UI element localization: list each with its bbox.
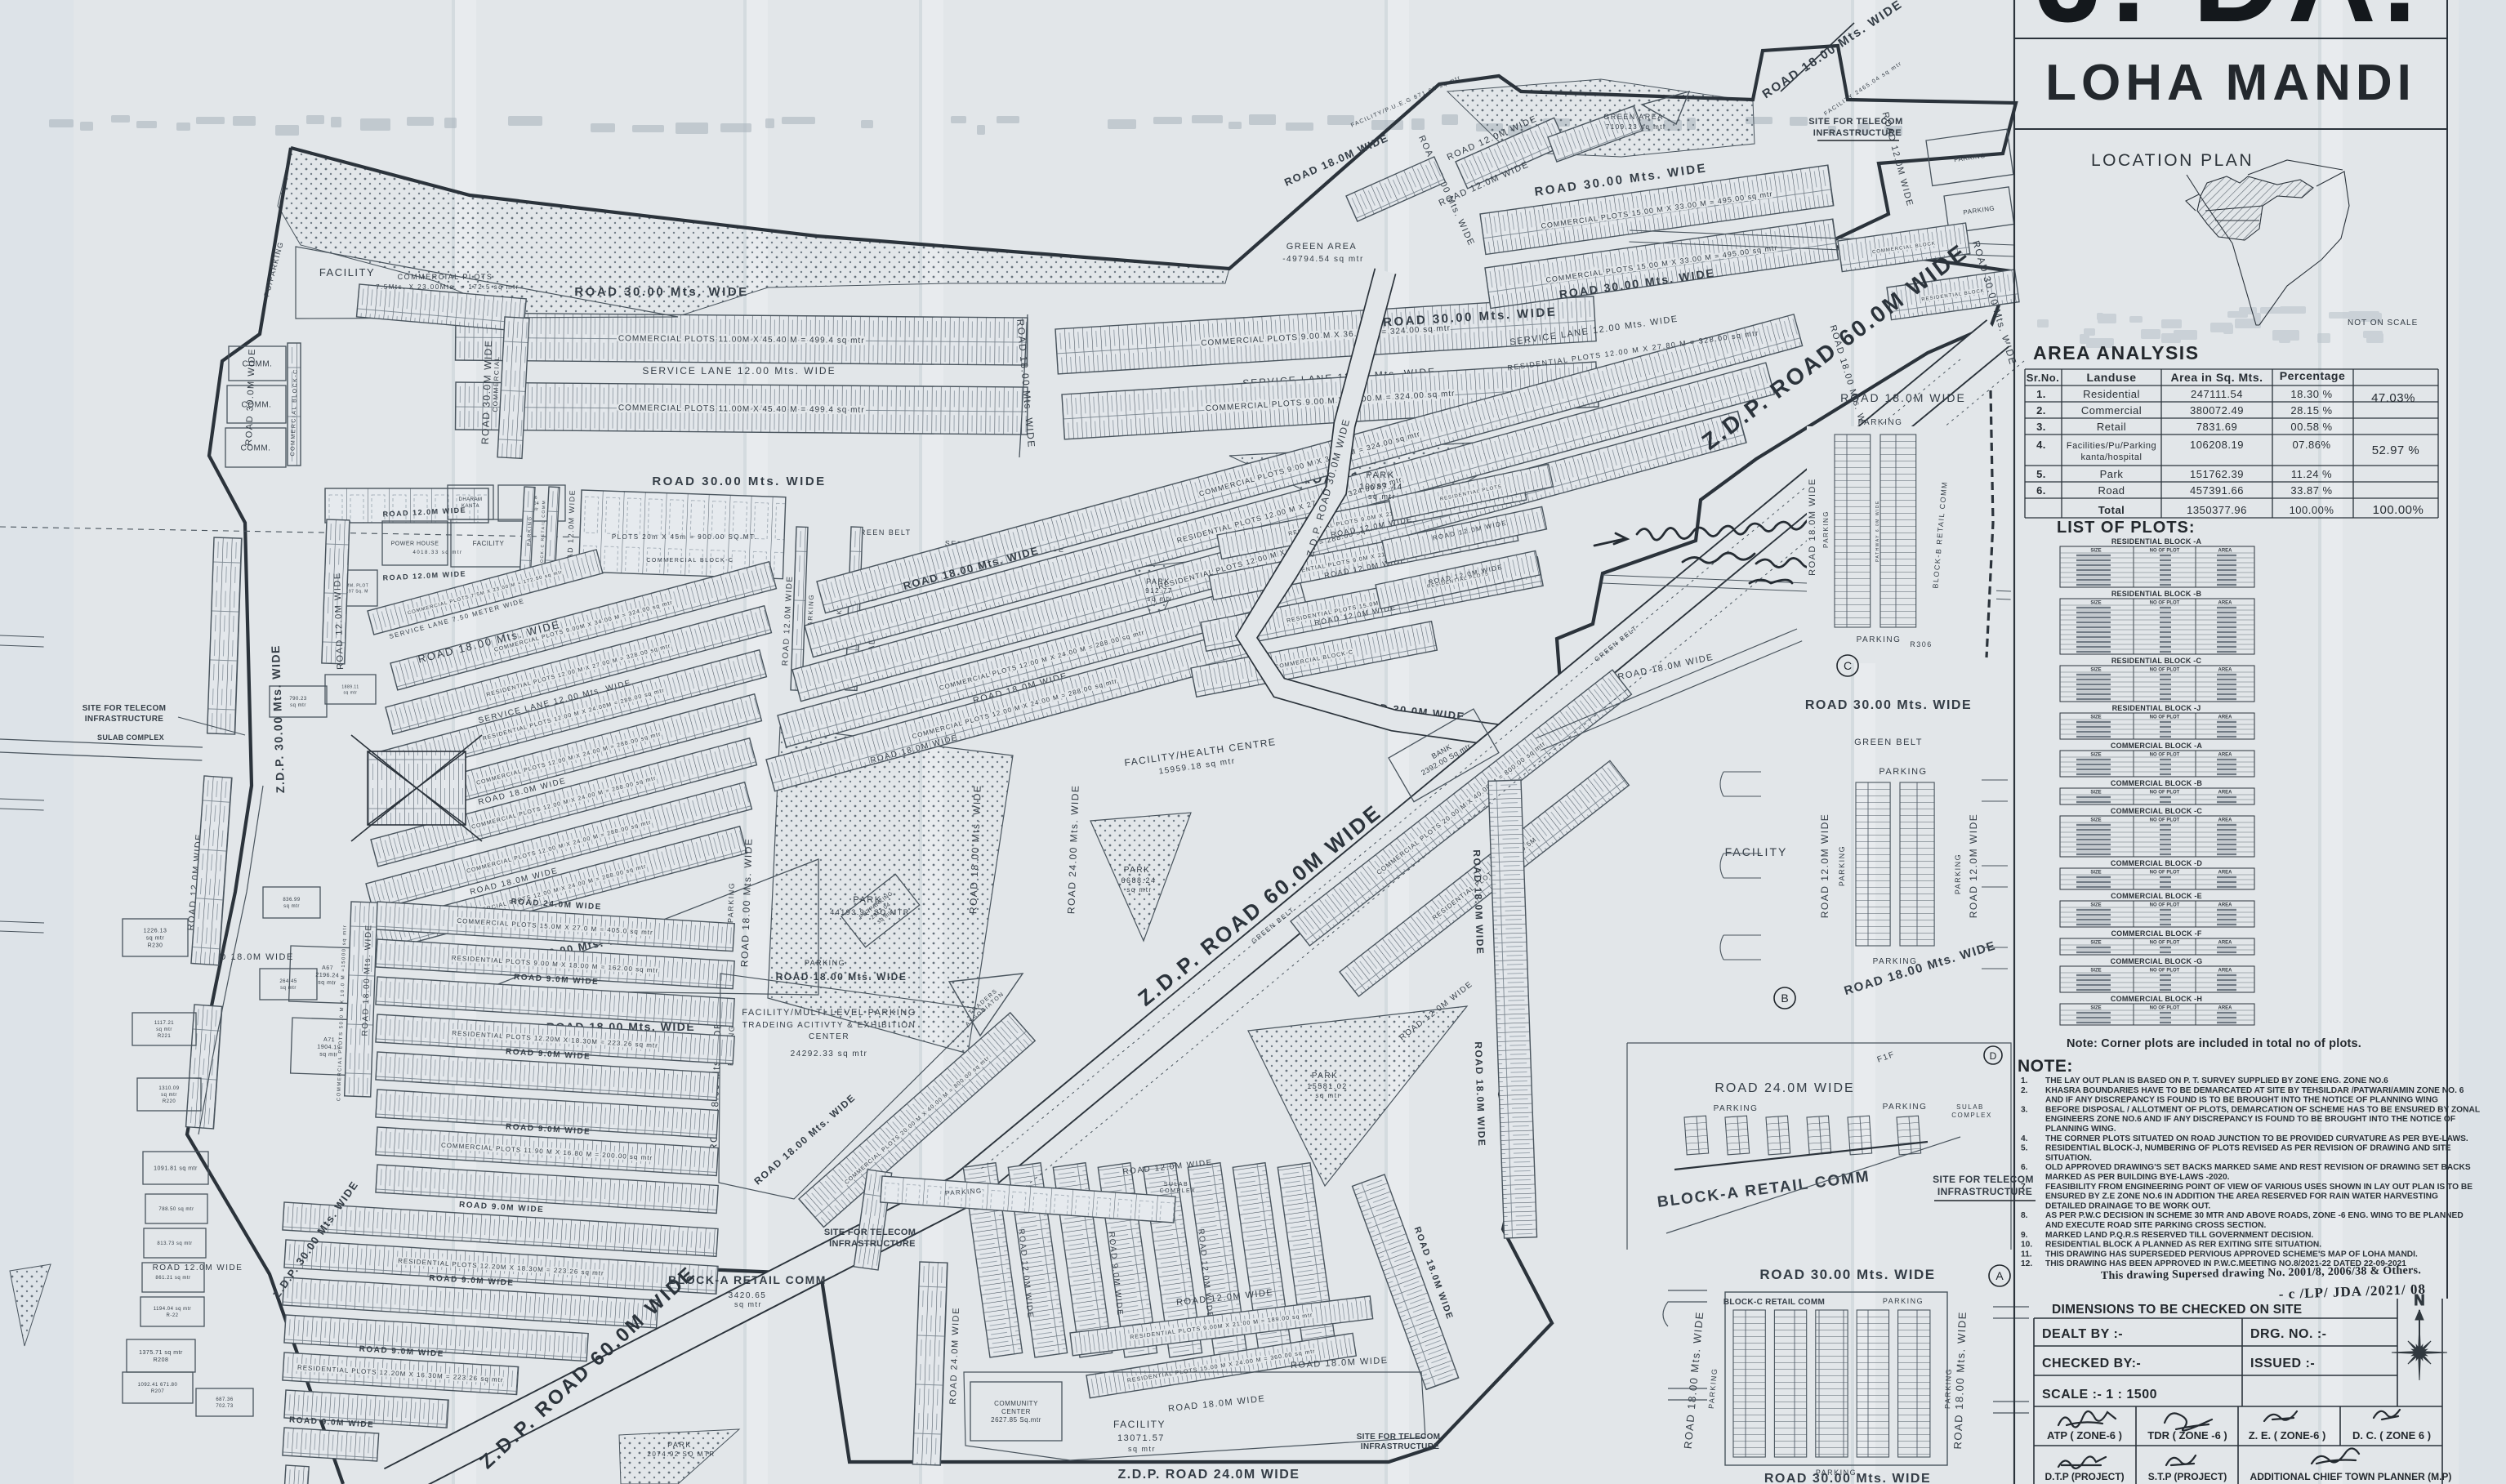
svg-text:R221: R221 [158, 1034, 172, 1039]
svg-text:790.23: 790.23 [289, 697, 307, 702]
svg-text:D.T.P (PROJECT): D.T.P (PROJECT) [2044, 1471, 2124, 1482]
svg-text:ROAD 12.0M WIDE: ROAD 12.0M WIDE [1968, 813, 1979, 919]
svg-text:ISSUED :-: ISSUED :- [2250, 1357, 2315, 1370]
svg-text:SIZE: SIZE [2090, 715, 2101, 720]
svg-text:Facilities/Pu/Parking: Facilities/Pu/Parking [2067, 441, 2156, 451]
svg-text:457391.66: 457391.66 [2190, 484, 2244, 497]
svg-text:TDR ( ZONE -6 ): TDR ( ZONE -6 ) [2147, 1429, 2227, 1442]
svg-text:CHECKED BY:-: CHECKED BY:- [2042, 1357, 2141, 1370]
svg-text:sq mtr: sq mtr [1315, 1092, 1340, 1099]
svg-text:PARK: PARK [667, 1441, 692, 1449]
svg-text:SULAB: SULAB [1164, 1182, 1188, 1188]
svg-text:1194.04 sq mtr: 1194.04 sq mtr [154, 1307, 192, 1312]
svg-text:RESIDENTIAL BLOCK A PLANNED AS: RESIDENTIAL BLOCK A PLANNED AS RER EXITI… [2045, 1241, 2321, 1250]
svg-text:sq mtr: sq mtr [146, 935, 165, 941]
svg-text:DIMENSIONS TO BE CHECKED ON SI: DIMENSIONS TO BE CHECKED ON SITE [2052, 1303, 2302, 1317]
svg-text:DHARAM: DHARAM [458, 497, 482, 502]
svg-text:PARK: PARK [1146, 577, 1171, 586]
svg-text:4.: 4. [2021, 1134, 2028, 1143]
svg-text:FACILITY: FACILITY [1113, 1419, 1166, 1430]
svg-text:AREA: AREA [2218, 1006, 2232, 1011]
svg-text:PARKING: PARKING [1883, 1103, 1928, 1112]
svg-text:sq mtr: sq mtr [156, 1027, 172, 1032]
svg-text:ROAD 30.00 Mts. WIDE: ROAD 30.00 Mts. WIDE [1759, 1267, 1935, 1282]
svg-text:2196.24: 2196.24 [315, 973, 339, 979]
svg-text:ROAD 18.0M WIDE: ROAD 18.0M WIDE [1808, 478, 1817, 576]
svg-text:sq mtr: sq mtr [734, 1300, 762, 1308]
svg-text:PLANNING WING.: PLANNING WING. [2045, 1125, 2116, 1134]
svg-text:PARKING: PARKING [726, 882, 736, 924]
svg-text:ROAD 12.0M WIDE: ROAD 12.0M WIDE [1819, 813, 1830, 919]
svg-text:100.00%: 100.00% [2290, 504, 2334, 516]
svg-text:7831.69: 7831.69 [2196, 421, 2238, 433]
svg-text:687.36: 687.36 [216, 1397, 234, 1402]
svg-text:1310.09: 1310.09 [158, 1086, 179, 1091]
svg-text:PARKING: PARKING [1883, 1297, 1924, 1305]
svg-text:SIZE: SIZE [2090, 668, 2101, 673]
svg-text:ROAD 30.00 Mts. WIDE: ROAD 30.00 Mts. WIDE [652, 475, 826, 488]
svg-text:AND EXECUTE ROAD SITE PARKING: AND EXECUTE ROAD SITE PARKING CROSS SECT… [2045, 1221, 2267, 1230]
svg-text:SULAB COMPLEX: SULAB COMPLEX [97, 733, 164, 742]
svg-text:S.T.P (PROJECT): S.T.P (PROJECT) [2148, 1471, 2227, 1482]
svg-text:NO OF PLOT: NO OF PLOT [2150, 818, 2180, 823]
svg-text:INFRASTRUCTURE: INFRASTRUCTURE [1361, 1442, 1439, 1451]
svg-text:sq mtr: sq mtr [344, 690, 358, 695]
svg-text:6.: 6. [2021, 1163, 2028, 1172]
svg-text:151762.39: 151762.39 [2190, 468, 2244, 480]
svg-text:PARKING: PARKING [1714, 1104, 1759, 1113]
svg-text:1889.11: 1889.11 [341, 684, 359, 689]
svg-text:NO OF PLOT: NO OF PLOT [2150, 969, 2180, 974]
svg-text:AREA: AREA [2218, 903, 2232, 908]
svg-text:sq mtr: sq mtr [1128, 1445, 1156, 1453]
svg-text:A67: A67 [322, 965, 333, 971]
svg-text:INFRASTRUCTURE: INFRASTRUCTURE [1937, 1186, 2032, 1197]
svg-text:380072.49: 380072.49 [2190, 404, 2244, 417]
svg-text:AREA: AREA [2218, 668, 2232, 673]
svg-text:sq mtr: sq mtr [1368, 492, 1396, 501]
svg-text:POWER HOUSE: POWER HOUSE [391, 541, 439, 546]
svg-text:SITUATION.: SITUATION. [2045, 1153, 2092, 1162]
svg-text:AND IF ANY DISCREPANCY IS FOUN: AND IF ANY DISCREPANCY IS FOUND IS TO BE… [2045, 1096, 2438, 1105]
svg-text:Retail: Retail [2097, 421, 2126, 433]
svg-text:SIZE: SIZE [2090, 753, 2101, 758]
svg-text:KHASRA BOUNDARIES HAVE TO BE: KHASRA BOUNDARIES HAVE TO BE DEMARCATED … [2045, 1086, 2464, 1095]
svg-text:RESIDENTIAL BLOCK-J, NUMBERING: RESIDENTIAL BLOCK-J, NUMBERING OF PLOTS … [2045, 1144, 2451, 1153]
svg-text:PARK: PARK [1366, 470, 1394, 480]
svg-text:NOTE:: NOTE: [2018, 1057, 2073, 1076]
svg-text:AREA: AREA [2218, 753, 2232, 758]
svg-text:FACILITY: FACILITY [473, 540, 505, 547]
svg-text:RESIDENTIAL BLOCK -A: RESIDENTIAL BLOCK -A [2111, 537, 2202, 546]
svg-text:COMMERCIAL BLOCK -D: COMMERCIAL BLOCK -D [2111, 859, 2202, 867]
svg-text:10087.44: 10087.44 [1359, 483, 1403, 492]
svg-text:ROAD 30.00 Mts. WIDE: ROAD 30.00 Mts. WIDE [1805, 698, 1972, 712]
svg-text:COMMERCIAL BLOCK -C: COMMERCIAL BLOCK -C [2111, 807, 2202, 815]
svg-text:702.73: 702.73 [216, 1404, 234, 1409]
svg-text:Road: Road [2098, 484, 2125, 497]
svg-text:FACILITY: FACILITY [1725, 845, 1788, 858]
svg-text:BEFORE DISPOSAL / ALLOTMENT OF: BEFORE DISPOSAL / ALLOTMENT OF PLOTS, DE… [2045, 1105, 2480, 1114]
svg-text:Landuse: Landuse [2086, 371, 2136, 384]
svg-text:AREA: AREA [2218, 818, 2232, 823]
svg-text:GREEN AREA: GREEN AREA [1286, 242, 1358, 252]
svg-text:ADDITIONAL CHIEF TOWN PLANNER: ADDITIONAL CHIEF TOWN PLANNER (M.P) [2250, 1471, 2452, 1482]
svg-text:PARKING: PARKING [1954, 853, 1962, 894]
svg-text:4.: 4. [2036, 439, 2046, 451]
svg-text:SIZE: SIZE [2090, 1006, 2101, 1011]
svg-text:7109.23 sq mtr: 7109.23 sq mtr [1606, 123, 1666, 131]
svg-text:sq mtr: sq mtr [283, 904, 300, 909]
svg-text:AREA ANALYSIS: AREA ANALYSIS [2033, 342, 2200, 363]
svg-text:AREA: AREA [2218, 871, 2232, 876]
svg-text:R230: R230 [148, 943, 163, 948]
svg-text:2.: 2. [2036, 404, 2046, 417]
svg-text:AREA: AREA [2218, 791, 2232, 795]
svg-text:DRG. NO. :-: DRG. NO. :- [2250, 1327, 2327, 1341]
svg-text:SIZE: SIZE [2090, 903, 2101, 908]
svg-text:OLD APPROVED DRAWING'S SET BAC: OLD APPROVED DRAWING'S SET BACKS MARKED … [2045, 1163, 2471, 1172]
svg-text:A71: A71 [323, 1037, 335, 1043]
svg-text:A: A [1995, 1269, 2004, 1282]
svg-text:1350377.96: 1350377.96 [2187, 504, 2247, 516]
svg-text:ATP ( ZONE-6 ): ATP ( ZONE-6 ) [2047, 1429, 2122, 1442]
svg-text:MARKED LAND P.Q.R.S RESERVED T: MARKED LAND P.Q.R.S RESERVED TILL GOVERN… [2045, 1231, 2313, 1240]
svg-text:kanta/hospital: kanta/hospital [2081, 452, 2143, 462]
svg-text:11.24 %: 11.24 % [2291, 468, 2332, 480]
svg-text:sq mtr: sq mtr [1126, 886, 1152, 894]
svg-text:ROAD 24.0M WIDE: ROAD 24.0M WIDE [1715, 1081, 1854, 1095]
svg-text:COMMERCIAL BLOCK -A: COMMERCIAL BLOCK -A [2111, 742, 2202, 750]
svg-text:47.03%: 47.03% [2371, 391, 2415, 405]
svg-text:THIS DRAWING HAS SUPERSEDED PE: THIS DRAWING HAS SUPERSEDED PERVIOUS APP… [2045, 1250, 2418, 1259]
svg-text:FACILITY: FACILITY [319, 266, 375, 279]
svg-text:N: N [2415, 1292, 2425, 1308]
svg-text:PARKING: PARKING [1943, 1368, 1953, 1410]
svg-text:Percentage: Percentage [2280, 369, 2345, 382]
svg-text:LOHA MANDI: LOHA MANDI [2045, 55, 2416, 111]
svg-text:PARKING: PARKING [1838, 845, 1846, 886]
svg-text:C: C [1844, 659, 1852, 672]
svg-text:AS PER P.W.C DECISION IN SCHE: AS PER P.W.C DECISION IN SCHEME 30 MTR A… [2045, 1211, 2464, 1220]
svg-text:COMMERCIAL BLOCK -B: COMMERCIAL BLOCK -B [2111, 779, 2202, 787]
svg-text:00.58 %: 00.58 % [2290, 421, 2332, 433]
svg-text:ENGINEERS ZONE NO.6 AND IF AN: ENGINEERS ZONE NO.6 AND IF ANY DISCREPAN… [2045, 1115, 2455, 1124]
svg-text:D. C. ( ZONE 6 ): D. C. ( ZONE 6 ) [2352, 1429, 2431, 1442]
svg-text:15581.02: 15581.02 [1307, 1082, 1348, 1090]
svg-text:PARKING: PARKING [1822, 510, 1830, 548]
svg-text:5.: 5. [2021, 1144, 2028, 1153]
svg-text:COMMERCIAL BLOCK-C: COMMERCIAL BLOCK-C [646, 558, 734, 564]
svg-text:AREA: AREA [2218, 549, 2232, 554]
svg-text:COMPLEX: COMPLEX [1160, 1188, 1197, 1194]
svg-text:INFRASTRUCTURE: INFRASTRUCTURE [85, 715, 163, 724]
svg-text:sq mtr: sq mtr [1147, 595, 1172, 603]
svg-text:sq mtr: sq mtr [290, 703, 306, 708]
svg-text:44193.92 SQ MTR: 44193.92 SQ MTR [830, 908, 910, 916]
svg-text:COMMERCIAL BLOCK -H: COMMERCIAL BLOCK -H [2111, 995, 2202, 1003]
svg-text:THE LAY OUT PLAN IS BASED ON: THE LAY OUT PLAN IS BASED ON P. T. SURVE… [2045, 1076, 2388, 1085]
svg-text:SIZE: SIZE [2090, 969, 2101, 974]
svg-text:COMMERCIAL BLOCK -F: COMMERCIAL BLOCK -F [2111, 929, 2201, 938]
svg-text:R220: R220 [163, 1099, 176, 1104]
svg-text:10.: 10. [2021, 1241, 2032, 1250]
svg-text:COMMERCIAL PLOTS: COMMERCIAL PLOTS [398, 273, 493, 281]
svg-text:1904.19: 1904.19 [317, 1045, 341, 1051]
svg-text:NOT ON SCALE: NOT ON SCALE [2348, 319, 2418, 328]
svg-text:LIST OF PLOTS:: LIST OF PLOTS: [2057, 519, 2196, 537]
svg-text:Note: Corner plots are include: Note: Corner plots are included in total… [2067, 1037, 2361, 1050]
svg-text:PARK: PARK [1312, 1072, 1339, 1081]
svg-text:5.: 5. [2036, 468, 2046, 480]
svg-text:CENTER: CENTER [809, 1032, 849, 1041]
svg-text:J. DA.: J. DA. [2036, 0, 2423, 47]
svg-text:D: D [1990, 1050, 1997, 1062]
svg-text:NO OF PLOT: NO OF PLOT [2150, 715, 2180, 720]
svg-text:TRADEING ACITIVTY & EXHIBITION: TRADEING ACITIVTY & EXHIBITION [742, 1021, 916, 1030]
svg-text:ROAD 30.00 Mts. WIDE: ROAD 30.00 Mts. WIDE [574, 285, 748, 299]
svg-text:THE CORNER PLOTS SITUATED ON R: THE CORNER PLOTS SITUATED ON ROAD JUNCTI… [2045, 1134, 2468, 1143]
svg-text:ROAD 12.0M WIDE: ROAD 12.0M WIDE [153, 1263, 243, 1272]
svg-text:ROAD 18.0M WIDE: ROAD 18.0M WIDE [1840, 391, 1966, 404]
svg-text:NO OF PLOT: NO OF PLOT [2150, 753, 2180, 758]
svg-text:RESIDENTIAL BLOCK -J: RESIDENTIAL BLOCK -J [2112, 704, 2201, 712]
svg-text:SIZE: SIZE [2090, 941, 2101, 946]
svg-text:RESIDENTIAL BLOCK -C: RESIDENTIAL BLOCK -C [2111, 657, 2202, 665]
svg-text:SITE FOR TELECOM: SITE FOR TELECOM [824, 1228, 916, 1237]
svg-text:NO OF PLOT: NO OF PLOT [2150, 791, 2180, 795]
svg-text:PARKING: PARKING [1858, 418, 1903, 427]
svg-text:13071.57: 13071.57 [1117, 1433, 1165, 1443]
svg-text:DEALT BY :-: DEALT BY :- [2042, 1327, 2123, 1341]
svg-text:sq mtr: sq mtr [318, 980, 337, 987]
svg-text:PATHWAY 6.0M WIDE: PATHWAY 6.0M WIDE [1875, 500, 1880, 562]
svg-text:2.: 2. [2021, 1086, 2028, 1095]
svg-text:NO OF PLOT: NO OF PLOT [2150, 871, 2180, 876]
svg-text:SIZE: SIZE [2090, 818, 2101, 823]
svg-text:3420.65: 3420.65 [729, 1291, 767, 1300]
svg-text:28.15 %: 28.15 % [2290, 404, 2332, 417]
svg-text:3.: 3. [2021, 1105, 2028, 1114]
svg-text:sq mtr: sq mtr [161, 1093, 177, 1098]
svg-text:11.: 11. [2021, 1250, 2032, 1259]
svg-text:PARKING: PARKING [1879, 767, 1927, 777]
svg-text:PARK: PARK [1124, 866, 1151, 875]
svg-text:AREA: AREA [2218, 969, 2232, 974]
svg-text:52.97 %: 52.97 % [2372, 443, 2420, 457]
svg-text:SERVICE LANE 12.00 Mts. WIDE: SERVICE LANE 12.00 Mts. WIDE [642, 365, 836, 377]
svg-text:GREEN BELT: GREEN BELT [1854, 738, 1923, 747]
svg-text:6688.24: 6688.24 [1121, 876, 1156, 885]
svg-text:R207: R207 [151, 1389, 165, 1394]
svg-text:Z.D.P. ROAD 24.0M WIDE: Z.D.P. ROAD 24.0M WIDE [1118, 1468, 1300, 1482]
svg-text:CENTER: CENTER [1001, 1408, 1031, 1415]
svg-text:SIZE: SIZE [2090, 871, 2101, 876]
svg-text:788.50 sq mtr: 788.50 sq mtr [158, 1207, 194, 1212]
svg-text:INFRASTRUCTURE: INFRASTRUCTURE [829, 1239, 916, 1249]
svg-text:PARK: PARK [853, 895, 881, 905]
svg-text:836.99: 836.99 [283, 898, 301, 902]
svg-text:8.: 8. [2021, 1211, 2028, 1220]
svg-text:AREA: AREA [2218, 941, 2232, 946]
svg-text:ROAD 30.00 Mts. WIDE: ROAD 30.00 Mts. WIDE [1764, 1472, 1931, 1484]
svg-text:264.45: 264.45 [279, 979, 297, 984]
svg-text:1375.71 sq mtr: 1375.71 sq mtr [139, 1350, 183, 1356]
svg-text:RESIDENTIAL BLOCK -B: RESIDENTIAL BLOCK -B [2111, 590, 2202, 598]
svg-text:Area in Sq. Mts.: Area in Sq. Mts. [2170, 371, 2263, 384]
svg-text:2074.92 SQ MTR: 2074.92 SQ MTR [647, 1451, 715, 1458]
svg-text:24292.33 sq mtr: 24292.33 sq mtr [791, 1049, 868, 1058]
svg-text:7.: 7. [2021, 1183, 2028, 1192]
svg-text:813.73 sq mtr: 813.73 sq mtr [157, 1241, 192, 1246]
svg-text:2627.85 Sq.mtr: 2627.85 Sq.mtr [991, 1416, 1041, 1424]
svg-text:1.: 1. [2036, 388, 2046, 400]
svg-text:MARKED AS PER BUILDING BYE-LAW: MARKED AS PER BUILDING BYE-LAWS -2020. [2045, 1173, 2230, 1182]
svg-text:SITE FOR TELECOM: SITE FOR TELECOM [1933, 1174, 2034, 1185]
svg-text:SULAB: SULAB [1956, 1103, 1984, 1111]
svg-text:1092.41 671.80: 1092.41 671.80 [138, 1383, 178, 1388]
svg-text:NO OF PLOT: NO OF PLOT [2150, 1006, 2180, 1011]
svg-text:Park: Park [2100, 468, 2124, 480]
svg-text:33.87 %: 33.87 % [2290, 484, 2332, 497]
svg-text:SIZE: SIZE [2090, 549, 2101, 554]
svg-text:AREA: AREA [2218, 601, 2232, 606]
svg-text:BLOCK-C RETAIL COMM: BLOCK-C RETAIL COMM [1723, 1298, 1825, 1307]
svg-text:Residential: Residential [2083, 388, 2140, 400]
svg-text:Total: Total [2098, 504, 2125, 516]
svg-text:BLOCK-A RETAIL COMM: BLOCK-A RETAIL COMM [668, 1273, 827, 1286]
svg-text:-49794.54 sq mtr: -49794.54 sq mtr [1282, 255, 1364, 264]
svg-text:R306: R306 [1910, 640, 1933, 648]
svg-text:1117.21: 1117.21 [154, 1021, 174, 1026]
svg-text:912.77: 912.77 [1145, 587, 1172, 595]
svg-text:ROAD 18.00 Mts. WIDE: ROAD 18.00 Mts. WIDE [776, 971, 907, 983]
svg-text:PARKING: PARKING [805, 959, 845, 967]
svg-text:NO OF PLOT: NO OF PLOT [2150, 601, 2180, 606]
svg-text:AREA: AREA [2218, 715, 2232, 720]
svg-text:NO OF PLOT: NO OF PLOT [2150, 941, 2180, 946]
svg-text:100.00%: 100.00% [2373, 503, 2424, 517]
svg-text:1.: 1. [2021, 1076, 2028, 1085]
svg-text:Commercial: Commercial [2081, 404, 2142, 417]
svg-text:7.5Mts. X 23.00Mts. = 172.5 sq: 7.5Mts. X 23.00Mts. = 172.5 sq mtr [376, 283, 519, 291]
svg-text:R-22: R-22 [166, 1313, 178, 1318]
svg-text:SITE FOR TELECOM: SITE FOR TELECOM [82, 704, 167, 713]
svg-text:COMMERCIAL BLOCK -E: COMMERCIAL BLOCK -E [2111, 892, 2202, 900]
svg-text:sq mtr: sq mtr [280, 986, 297, 991]
svg-text:18.30 %: 18.30 % [2290, 388, 2332, 400]
svg-text:COMPLEX: COMPLEX [1951, 1112, 1992, 1119]
svg-text:SCALE :- 1 : 1500: SCALE :- 1 : 1500 [2042, 1388, 2157, 1402]
svg-text:DETAILED DRAINAGE TO BE WORK: DETAILED DRAINAGE TO BE WORK OUT. [2045, 1201, 2210, 1210]
svg-text:861.21 sq mtr: 861.21 sq mtr [155, 1276, 190, 1281]
svg-text:SITE FOR TELECOM: SITE FOR TELECOM [1357, 1433, 1441, 1442]
svg-text:NO OF PLOT: NO OF PLOT [2150, 668, 2180, 673]
svg-text:4018.33 sq mtr: 4018.33 sq mtr [412, 550, 462, 555]
svg-text:Z. E. ( ZONE-6 ): Z. E. ( ZONE-6 ) [2249, 1429, 2326, 1442]
svg-text:6.: 6. [2036, 484, 2046, 497]
svg-text:SIZE: SIZE [2090, 601, 2101, 606]
svg-text:Sr.No.: Sr.No. [2027, 372, 2060, 384]
svg-text:12.: 12. [2021, 1259, 2032, 1268]
svg-text:FEASIBILITY FROM ENGINEERING P: FEASIBILITY FROM ENGINEERING POINT OF VI… [2045, 1183, 2473, 1192]
svg-text:1226.13: 1226.13 [144, 928, 167, 934]
svg-text:sq mtr: sq mtr [319, 1052, 338, 1058]
svg-text:R208: R208 [154, 1357, 169, 1363]
svg-text:9.: 9. [2021, 1231, 2028, 1240]
svg-text:PARKING: PARKING [1857, 635, 1902, 644]
svg-text:SIZE: SIZE [2090, 791, 2101, 795]
svg-text:1091.81 sq mtr: 1091.81 sq mtr [154, 1165, 198, 1171]
svg-text:NO OF PLOT: NO OF PLOT [2150, 549, 2180, 554]
svg-text:LOCATION PLAN: LOCATION PLAN [2091, 151, 2254, 170]
svg-text:B: B [1781, 992, 1788, 1005]
svg-text:247111.54: 247111.54 [2191, 388, 2243, 400]
svg-text:FACILITY/MULTI LEVEL PARKING: FACILITY/MULTI LEVEL PARKING [742, 1008, 916, 1018]
svg-text:PLOTS 20m X 45m = 900.00 SQ.MT: PLOTS 20m X 45m = 900.00 SQ.MT. [612, 533, 757, 541]
svg-text:ENSURED BY Z.E ZONE NO.6 IN A: ENSURED BY Z.E ZONE NO.6 IN ADDITION THE… [2045, 1192, 2438, 1201]
svg-text:COMMUNITY: COMMUNITY [994, 1400, 1038, 1407]
svg-text:NO OF PLOT: NO OF PLOT [2150, 903, 2180, 908]
svg-text:GREEN AREA: GREEN AREA [1603, 113, 1664, 121]
svg-text:COMMERCIAL BLOCK -G: COMMERCIAL BLOCK -G [2111, 957, 2203, 965]
svg-text:3.: 3. [2036, 421, 2046, 433]
svg-text:07.86%: 07.86% [2292, 439, 2330, 451]
svg-text:106208.19: 106208.19 [2190, 439, 2244, 451]
